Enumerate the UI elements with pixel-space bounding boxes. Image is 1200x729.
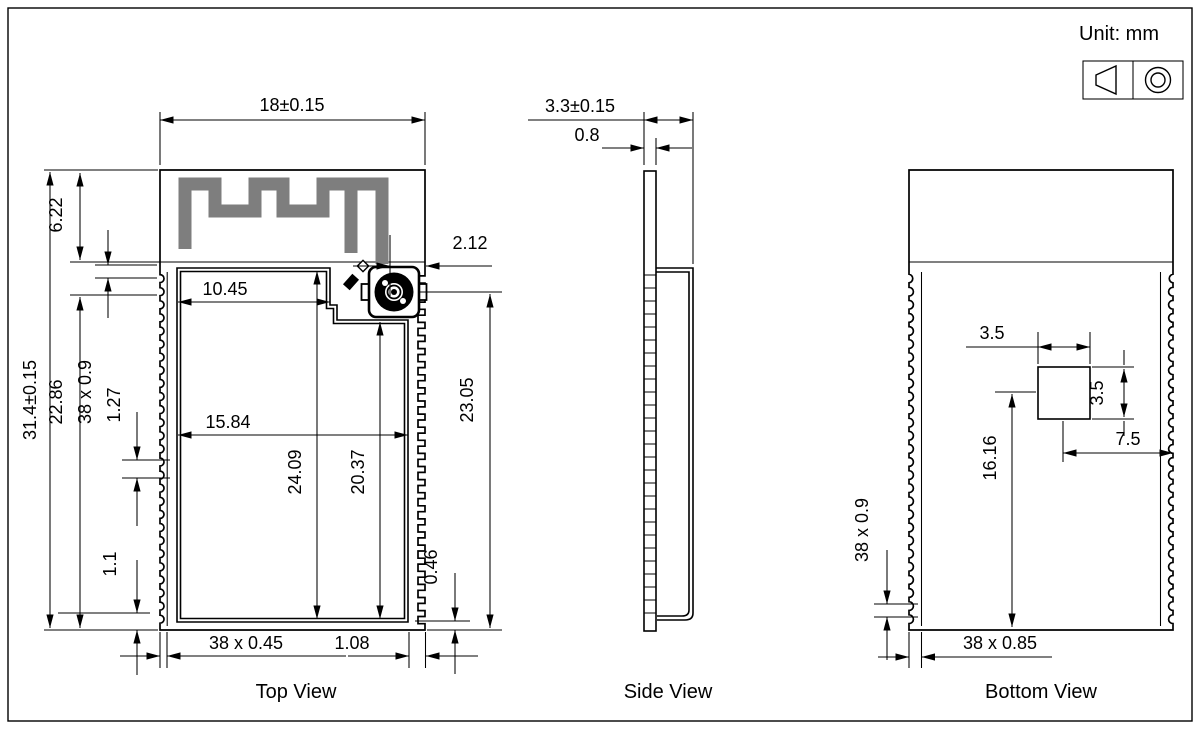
dim-text-pad-height: 3.5 bbox=[1087, 380, 1107, 405]
dim-text-pin-pitch: 38 x 0.9 bbox=[75, 360, 95, 424]
dim-text-shield-upper-width: 10.45 bbox=[202, 279, 247, 299]
ext-lines-bottom-view bbox=[874, 604, 922, 668]
dim-text-shield-width: 15.84 bbox=[205, 412, 250, 432]
pcb-edge bbox=[644, 171, 656, 631]
shield-outline-inner bbox=[181, 272, 405, 619]
ext-lines-pad-center bbox=[995, 392, 1063, 462]
dim-text-pad-width: 3.5 bbox=[979, 323, 1004, 343]
dim-text-thickness: 3.3±0.15 bbox=[545, 96, 615, 116]
shield-outline-outer bbox=[177, 268, 408, 622]
dim-text-pad-center-to-right: 7.5 bbox=[1115, 429, 1140, 449]
dim-text-connector-to-bottom: 23.05 bbox=[457, 377, 477, 422]
projection-symbol bbox=[1083, 61, 1183, 99]
dim-text-width: 18±0.15 bbox=[260, 95, 325, 115]
dim-text-pitch: 1.27 bbox=[104, 387, 124, 422]
bottom-view: 3.5 3.5 7.5 16.16 38 x 0.9 38 x 0.85 Bot… bbox=[852, 170, 1173, 703]
connector-pin bbox=[391, 289, 397, 295]
dim-text-overall-height: 31.4±0.15 bbox=[20, 360, 40, 440]
component-mark-chip bbox=[344, 274, 359, 289]
castellated-edge-left-bottom bbox=[909, 272, 913, 626]
dim-text-pad-inset: 0.46 bbox=[421, 549, 441, 584]
dim-text-pad-center-to-bottom: 16.16 bbox=[980, 435, 1000, 480]
ext-lines-pad bbox=[1038, 332, 1134, 436]
pcb-castellation-hatch bbox=[645, 275, 656, 613]
shield-side-outer bbox=[656, 268, 693, 620]
dim-text-pcb-thickness: 0.8 bbox=[574, 125, 599, 145]
dim-text-connector-offset: 2.12 bbox=[452, 233, 487, 253]
mechanical-drawing-svg: Unit: mm bbox=[0, 0, 1200, 729]
concentric-circles-icon bbox=[1146, 68, 1171, 93]
dim-text-pad-size-bottom: 38 x 0.85 bbox=[963, 633, 1037, 653]
dim-text-pad-size: 38 x 0.45 bbox=[209, 633, 283, 653]
concentric-circles-icon-inner bbox=[1151, 73, 1165, 87]
shield-side-inner bbox=[656, 272, 689, 616]
dim-text-pin-row-height: 22.86 bbox=[46, 379, 66, 424]
module-outline-bottom bbox=[909, 170, 1173, 630]
dim-text-corner-gap: 1.08 bbox=[334, 633, 369, 653]
dim-text-shield-height: 24.09 bbox=[285, 449, 305, 494]
side-view: 3.3±0.15 0.8 Side View bbox=[528, 96, 713, 703]
ext-lines-pitch-mid bbox=[58, 460, 170, 613]
thermal-pad bbox=[1038, 367, 1090, 419]
ext-lines-side bbox=[644, 112, 693, 264]
top-view-label: Top View bbox=[256, 681, 337, 703]
drawing-page: Unit: mm bbox=[0, 0, 1200, 729]
top-view: 18±0.15 31.4±0.15 6.22 22.86 38 x 0.9 1.… bbox=[20, 95, 502, 703]
dim-text-bottom-margin: 1.1 bbox=[100, 551, 120, 576]
connector-slot bbox=[400, 298, 406, 304]
dim-text-shield-lower-height: 20.37 bbox=[348, 449, 368, 494]
dim-text-pin-pitch-bottom: 38 x 0.9 bbox=[852, 498, 872, 562]
ipex-connector bbox=[362, 267, 427, 317]
truncated-cone-icon bbox=[1096, 66, 1116, 94]
connector-slot bbox=[382, 280, 388, 286]
unit-note: Unit: mm bbox=[1079, 23, 1159, 45]
castellated-edge-left bbox=[160, 272, 164, 626]
dim-text-antenna-height: 6.22 bbox=[46, 197, 66, 232]
castellated-edge-right-bottom bbox=[1169, 272, 1173, 626]
side-view-label: Side View bbox=[624, 681, 713, 703]
bottom-view-label: Bottom View bbox=[985, 681, 1097, 703]
ext-lines-bottom bbox=[160, 632, 426, 668]
ext-lines-pitch-top bbox=[70, 262, 160, 295]
